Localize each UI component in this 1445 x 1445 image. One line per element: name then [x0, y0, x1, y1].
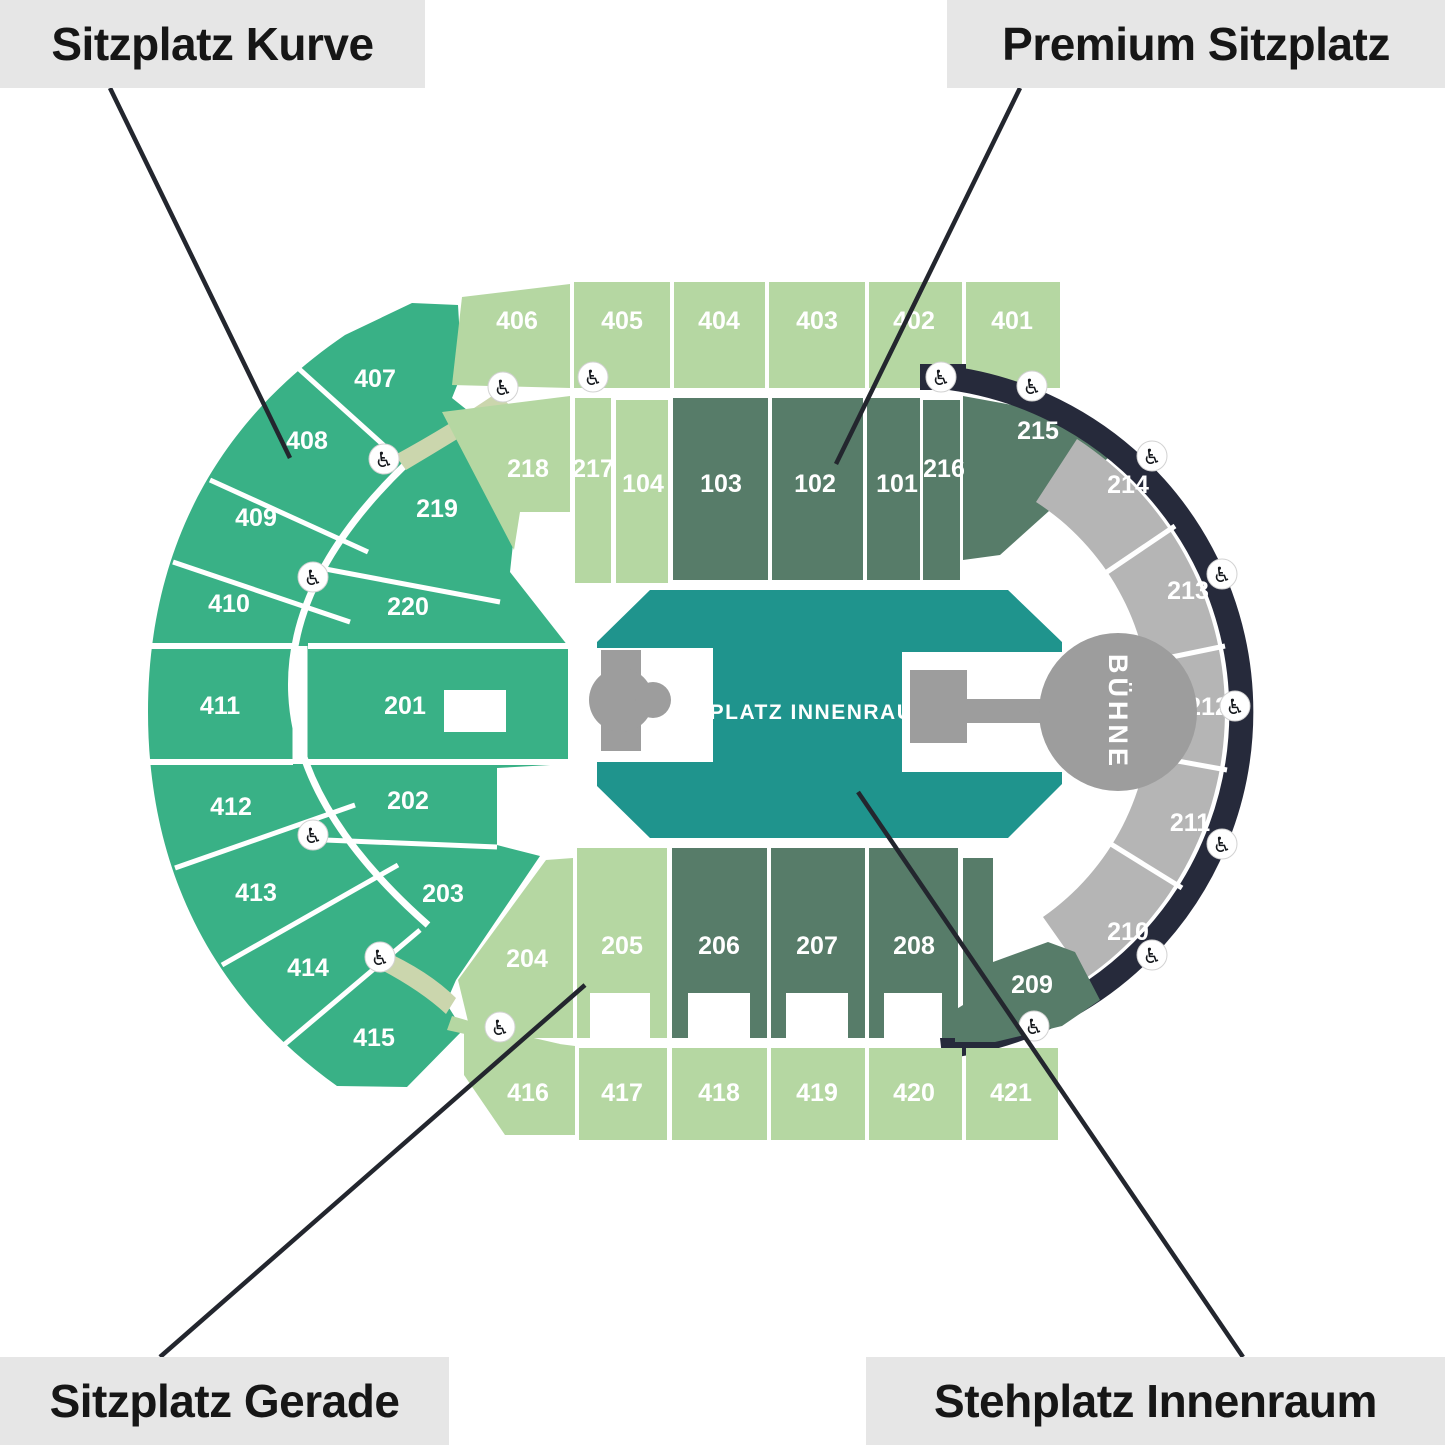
section-219-label[interactable]: 219: [416, 495, 458, 523]
leader-line-sitzplatz-kurve: [110, 88, 290, 458]
section-205-entrance-cutout: [590, 993, 650, 1038]
section-406-label[interactable]: 406: [496, 307, 538, 335]
stage-label: BÜHNE: [1103, 654, 1133, 770]
section-211-label[interactable]: 211: [1170, 809, 1210, 837]
section-401-label[interactable]: 401: [991, 307, 1033, 335]
section-215-label[interactable]: 215: [1017, 417, 1059, 445]
wheelchair-icon: ♿: [1143, 445, 1162, 469]
legend-premium-sitzplatz: Premium Sitzplatz: [947, 0, 1445, 88]
section-103-label[interactable]: 103: [700, 470, 742, 498]
wheelchair-icon: ♿: [1023, 375, 1042, 399]
wheelchair-icon: ♿: [371, 946, 390, 970]
wheelchair-icon: ♿: [932, 366, 951, 390]
section-216-label[interactable]: 216: [923, 455, 965, 483]
wheelchair-icon: ♿: [1226, 695, 1245, 719]
section-217-shape[interactable]: [575, 398, 611, 583]
wheelchair-icon: ♿: [1213, 563, 1232, 587]
legend-sitzplatz-gerade: Sitzplatz Gerade: [0, 1357, 449, 1445]
section-414-label[interactable]: 414: [287, 954, 329, 982]
section-205-label[interactable]: 205: [601, 932, 643, 960]
section-404-shape[interactable]: [674, 282, 765, 388]
section-208-label[interactable]: 208: [893, 932, 935, 960]
foh-mixer-bump: [635, 682, 671, 718]
section-203-label[interactable]: 203: [422, 880, 464, 908]
arena-map: 4064054044034024012182171041031021012162…: [0, 0, 1445, 1445]
section-218-label[interactable]: 218: [507, 455, 549, 483]
section-216-shape[interactable]: [923, 400, 960, 580]
section-404-label[interactable]: 404: [698, 307, 740, 335]
section-419-label[interactable]: 419: [796, 1079, 838, 1107]
section-210-label[interactable]: 210: [1107, 918, 1149, 946]
section-406-shape[interactable]: [452, 284, 570, 388]
stage-platform: [910, 670, 967, 743]
section-410-label[interactable]: 410: [208, 590, 250, 618]
section-101-label[interactable]: 101: [876, 470, 918, 498]
section-412-label[interactable]: 412: [210, 793, 252, 821]
section-403-label[interactable]: 403: [796, 307, 838, 335]
wheelchair-icon: ♿: [491, 1016, 510, 1040]
section-214-label[interactable]: 214: [1107, 471, 1149, 499]
section-420-label[interactable]: 420: [893, 1079, 935, 1107]
section-201-entrance-cutout: [444, 690, 506, 732]
legend-sitzplatz-kurve: Sitzplatz Kurve: [0, 0, 425, 88]
section-201-label[interactable]: 201: [384, 692, 426, 720]
section-102-label[interactable]: 102: [794, 470, 836, 498]
wheelchair-icon: ♿: [1025, 1015, 1044, 1039]
wheelchair-icon: ♿: [1143, 944, 1162, 968]
section-209-label[interactable]: 209: [1011, 971, 1053, 999]
section-217-label[interactable]: 217: [572, 455, 614, 483]
section-407-label[interactable]: 407: [354, 365, 396, 393]
section-418-label[interactable]: 418: [698, 1079, 740, 1107]
section-417-label[interactable]: 417: [601, 1079, 643, 1107]
section-206-entrance-cutout: [688, 993, 750, 1038]
section-421-label[interactable]: 421: [990, 1079, 1032, 1107]
section-411-label[interactable]: 411: [200, 692, 240, 720]
section-416-label[interactable]: 416: [507, 1079, 549, 1107]
standing-area-label: STEHPLATZ INNENRAUM: [648, 701, 933, 724]
section-403-shape[interactable]: [769, 282, 865, 388]
section-409-label[interactable]: 409: [235, 504, 277, 532]
section-206-label[interactable]: 206: [698, 932, 740, 960]
seating-map-page: 4064054044034024012182171041031021012162…: [0, 0, 1445, 1445]
section-207-entrance-cutout: [786, 993, 848, 1038]
section-104-label[interactable]: 104: [622, 470, 664, 498]
section-204-label[interactable]: 204: [506, 945, 548, 973]
section-208-entrance-cutout: [884, 993, 942, 1038]
section-220-label[interactable]: 220: [387, 593, 429, 621]
wheelchair-icon: ♿: [1213, 833, 1232, 857]
section-213-label[interactable]: 213: [1167, 577, 1209, 605]
section-413-label[interactable]: 413: [235, 879, 277, 907]
wheelchair-icon: ♿: [584, 366, 603, 390]
section-415-label[interactable]: 415: [353, 1024, 395, 1052]
wheelchair-icon: ♿: [304, 566, 323, 590]
wheelchair-icon: ♿: [494, 376, 513, 400]
wheelchair-icon: ♿: [375, 448, 394, 472]
section-408-label[interactable]: 408: [286, 427, 328, 455]
legend-stehplatz-innenraum: Stehplatz Innenraum: [866, 1357, 1445, 1445]
section-405-label[interactable]: 405: [601, 307, 643, 335]
section-202-label[interactable]: 202: [387, 787, 429, 815]
wheelchair-icon: ♿: [304, 824, 323, 848]
section-207-label[interactable]: 207: [796, 932, 838, 960]
